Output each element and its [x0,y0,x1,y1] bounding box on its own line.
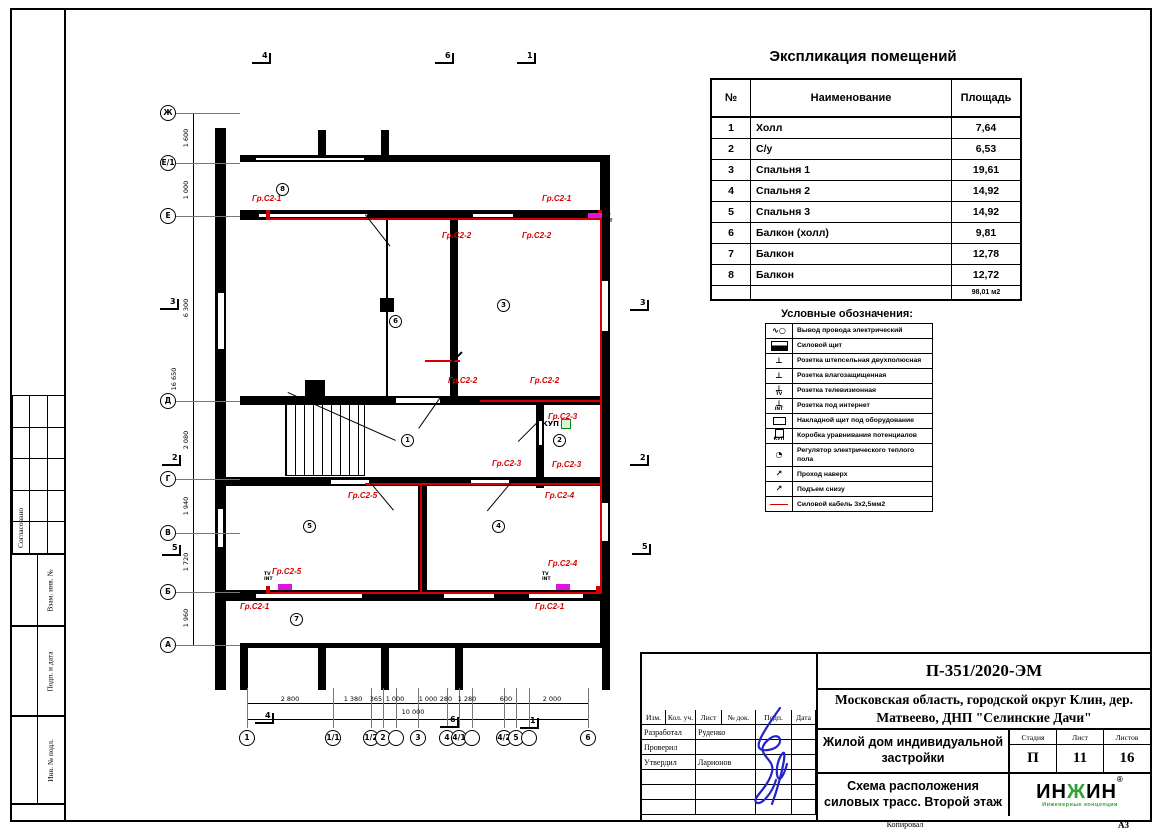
room-area: 9,81 [952,223,1022,244]
pass-up-icon: ↗ [766,467,793,481]
room-name: С/у [751,139,952,160]
legend-item: КУПКоробка уравнивания потенциалов [766,429,932,444]
room-name: Балкон (холл) [751,223,952,244]
col-name: Наименование [751,79,952,117]
floor-regulator-icon: ◔ [766,444,793,466]
left-grid-cell [13,459,30,491]
legend-rows: ∿○Вывод провода электрическийСиловой щит… [766,324,932,511]
revision-cell [666,654,696,668]
room-area: 12,72 [952,265,1022,286]
room-number: 6 [711,223,751,244]
room-number: 8 [711,265,751,286]
legend-item-label: Накладной щит под оборудование [793,414,932,427]
power-wiring-line [480,400,602,402]
dimension-label: 1 940 [182,497,190,516]
vzam-label: Взам. инв. № [46,569,55,611]
revision-grid [642,654,816,710]
left-grid-cell [13,428,30,460]
signature [742,706,798,812]
title-block-right: П-351/2020-ЭМ Московская область, городс… [818,654,1150,820]
revision-cell [792,682,816,696]
registered-mark-icon: ® [1117,775,1124,784]
circuit-group-label: Гр.С2-4 [545,492,574,500]
left-grid-cell [48,396,65,428]
wall [318,130,326,157]
room-number-bubble: 4 [492,520,505,533]
axis-bubble: Е/1 [160,155,176,171]
circuit-group-label: Гр.С2-4 [548,560,577,568]
room-number-bubble: 6 [389,315,402,328]
axis-leader-line [176,479,240,480]
window [217,508,224,548]
axis-bubble [521,730,537,746]
left-grid-cell [30,459,47,491]
power-wiring-line [268,592,602,594]
axis-leader-line [459,688,460,728]
dimension-label: 1 600 [182,129,190,148]
podp-empty-cell [10,627,38,715]
dimension-label: 365 [370,695,382,703]
table-row: 4Спальня 214,92 [711,181,1021,202]
circuit-group-label: Гр.С2-2 [448,377,477,385]
room-area: 14,92 [952,202,1022,223]
logo-text: ИНЖИН® [1036,782,1124,802]
col-izm: Изм. [642,710,666,724]
axis-bubble: Ж [160,105,176,121]
section-marker: 2 [630,454,648,466]
room-area: 6,53 [952,139,1022,160]
dimension-label: 280 [440,695,452,703]
legend-item: ◔Регулятор электрического теплого пола [766,444,932,467]
window [601,502,609,542]
door-swing [487,483,511,511]
kup-label: КУП [542,421,559,428]
wire-output-icon: ∿○ [766,324,793,338]
role-label: Проверил [642,740,696,755]
tv-int-socket-mark: TV INT [604,215,613,225]
revision-cell [696,654,722,668]
vzam-empty-cell [10,555,38,625]
revision-cell [666,696,696,710]
object-row: Жилой дом индивидуальной застройки Стади… [818,730,1150,774]
role-label: Утвердил [642,755,696,770]
window [395,397,441,404]
podp-data-box: Подп. и дата [10,625,64,715]
axis-leader-line [247,688,248,728]
section-marker: 5 [162,544,180,556]
explication-header-row: № Наименование Площадь [711,79,1021,117]
circuit-group-label: Гр.С2-1 [252,195,281,203]
left-grid-cell [48,459,65,491]
dimension-label: 1 000 [386,695,405,703]
wall [240,643,610,648]
power-wiring-line [268,218,602,220]
rise-below-icon: ↗ [766,482,793,496]
sheets-label: Листов [1104,730,1150,744]
legend-item: Силовой щит [766,339,932,354]
inv-podl-box: Инв. № подл. [10,715,64,805]
socket-internet-icon-suffix: INT [775,408,784,413]
circuit-group-label: Гр.С2-3 [548,413,577,421]
axis-leader-line [176,645,240,646]
role-label: Разработал [642,725,696,740]
dimension-label: 1 960 [182,609,190,628]
table-row: 8Балкон12,72 [711,265,1021,286]
explication-table: № Наименование Площадь 1Холл7,642С/у6,53… [710,78,1022,301]
room-number: 7 [711,244,751,265]
role-label [642,785,696,800]
revision-cell [666,668,696,682]
room-area: 19,61 [952,160,1022,181]
legend: ∿○Вывод провода электрическийСиловой щит… [765,323,933,512]
left-grid-cell [30,428,47,460]
legend-item-label: Вывод провода электрический [793,324,932,337]
circuit-group-label: Гр.С2-5 [272,568,301,576]
dimension-label: 600 [500,695,512,703]
section-marker: 4 [252,52,270,64]
wall [305,380,325,402]
wall [455,646,463,690]
axis-bubble: В [160,525,176,541]
section-marker: 6 [435,52,453,64]
title-block: Изм. Кол. уч. Лист № док. Подп. Дата Раз… [640,652,1152,822]
power-wiring-line [420,483,422,592]
axis-leader-line [176,533,240,534]
left-grid-cell [30,522,47,554]
sheet-title: Схема расположения силовых трасс. Второй… [818,774,1010,816]
table-row: 6Балкон (холл)9,81 [711,223,1021,244]
axis-leader-line [516,688,517,728]
room-area: 12,78 [952,244,1022,265]
col-number: № [711,79,751,117]
axis-leader-line [333,688,334,728]
legend-item: ⊥INTРозетка под интернет [766,399,932,414]
sheet-value: 11 [1057,745,1104,772]
kup-box-icon-suffix: КУП [774,438,785,443]
wall [380,298,394,312]
axis-bubble: Е [160,208,176,224]
axis-bubble: 1/1 [325,730,341,746]
socket-moisture-icon: ⊥ [766,369,793,383]
revision-cell [666,682,696,696]
axis-bubble [388,730,404,746]
surface-panel-icon [766,414,793,428]
section-marker: 1 [517,52,535,64]
drawing-sheet: Согласовано Взам. инв. № Подп. и дата Ин… [0,0,1166,832]
room-number-bubble: 5 [303,520,316,533]
power-panel-icon [766,339,793,353]
revision-cell [642,682,666,696]
legend-item: Накладной щит под оборудование [766,414,932,429]
stage-grid: Стадия Лист Листов П 11 16 [1010,730,1150,772]
axis-bubble: 3 [410,730,426,746]
room-name: Спальня 3 [751,202,952,223]
kup-box-icon: КУП [766,429,793,443]
axis-bubble: А [160,637,176,653]
revision-cell [642,668,666,682]
revision-cell [792,668,816,682]
tv-int-socket-icon [556,584,570,590]
axis-leader-line [371,688,372,728]
room-number: 1 [711,117,751,139]
col-list: Лист [696,710,722,724]
legend-item-label: Проход наверх [793,468,932,481]
room-name: Холл [751,117,952,139]
tv-int-socket-icon [278,584,292,590]
revision-cell [642,654,666,668]
axis-bubble: Г [160,471,176,487]
section-marker: 2 [162,454,180,466]
circuit-group-label: Гр.С2-3 [492,460,521,468]
project-address: Московская область, городской округ Клин… [818,690,1150,730]
int-label: INT [264,578,273,583]
circuit-group-label: Гр.С2-5 [348,492,377,500]
table-row: 7Балкон12,78 [711,244,1021,265]
floor-plan: КУП TV INT TV INT TV INT ЖЕ/1ЕДГВБА11/11… [140,40,665,800]
left-grid-cell [48,491,65,523]
legend-item: Силовой кабель 3х2,5мм2 [766,497,932,511]
circuit-group-label: Гр.С2-2 [530,377,559,385]
role-label [642,770,696,785]
axis-leader-line [176,216,240,217]
legend-item-label: Силовой щит [793,339,932,352]
room-number-bubble: 2 [553,434,566,447]
left-grid-cell [48,522,65,554]
tv-int-socket-mark: TV INT [542,573,551,583]
room-area: 14,92 [952,181,1022,202]
legend-item-label: Подъем снизу [793,483,932,496]
inv-empty-cell [10,717,38,803]
legend-item: ⊥TVРозетка телевизионная [766,384,932,399]
legend-item: ⊥Розетка штепсельная двухполюсная [766,354,932,369]
axis-leader-line [472,688,473,728]
room-name: Спальня 2 [751,181,952,202]
room-number: 3 [711,160,751,181]
axis-bubble: 1 [239,730,255,746]
window [217,292,225,350]
table-row: 3Спальня 119,61 [711,160,1021,181]
socket-internet-icon: ⊥INT [766,399,793,413]
window [330,479,370,485]
legend-item: ↗Проход наверх [766,467,932,482]
dimension-label: 10 000 [402,708,425,716]
socket-double-icon: ⊥ [766,354,793,368]
circuit-group-label: Гр.С2-1 [240,603,269,611]
section-marker: 4 [255,712,273,724]
legend-item-label: Регулятор электрического теплого пола [793,444,932,466]
legend-item: ⊥Розетка влагозащищенная [766,369,932,384]
legend-item-label: Силовой кабель 3х2,5мм2 [793,498,932,511]
revision-cell [722,668,756,682]
int-label: INT [604,220,613,225]
revision-cell [756,668,792,682]
legend-item-label: Розетка влагозащищенная [793,369,932,382]
section-marker: 5 [632,543,650,555]
axis-leader-line [504,688,505,728]
axis-leader-line [396,688,397,728]
dimension-label: 6 300 [182,299,190,318]
revision-cell [722,654,756,668]
room-number-bubble: 1 [401,434,414,447]
revision-cell [642,696,666,710]
tv-int-socket-icon [588,213,602,218]
power-wiring-line [266,210,270,220]
legend-title: Условные обозначения: [762,308,932,320]
room-number: 4 [711,181,751,202]
room-number: 5 [711,202,751,223]
dimension-label: 16 650 [170,368,178,391]
total-area: 98,01 м2 [952,286,1022,301]
left-grid-cell [30,396,47,428]
revision-cell [756,654,792,668]
section-marker: 6 [440,716,458,728]
table-row: 2С/у6,53 [711,139,1021,160]
wall [240,646,248,690]
circuit-group-label: Гр.С2-3 [552,461,581,469]
power-wiring-line [600,218,602,594]
revision-cell [696,696,722,710]
stage-value: П [1010,745,1057,772]
dimension-label: 2 800 [281,695,300,703]
doc-number: П-351/2020-ЭМ [818,654,1150,690]
table-row: 1Холл7,64 [711,117,1021,139]
room-name: Балкон [751,265,952,286]
role-label [642,800,696,815]
paper-format-label: А3 [1118,820,1129,830]
wall [215,128,226,690]
axis-leader-line [176,592,240,593]
circuit-group-label: Гр.С2-2 [442,232,471,240]
legend-item: ∿○Вывод провода электрический [766,324,932,339]
room-name: Спальня 1 [751,160,952,181]
axis-leader-line [176,113,240,114]
soglasovano-label: Согласовано [16,508,25,548]
left-dim-line [193,113,194,645]
table-row: 5Спальня 314,92 [711,202,1021,223]
left-grid-cell [30,491,47,523]
room-name: Балкон [751,244,952,265]
room-area: 7,64 [952,117,1022,139]
revision-cell [696,682,722,696]
dimension-label: 1 720 [182,553,190,572]
revision-cell [722,682,756,696]
dimension-label: 2 080 [182,431,190,450]
axis-bubble [464,730,480,746]
explication-title: Экспликация помещений [710,48,1016,65]
room-number: 2 [711,139,751,160]
revision-cell [756,682,792,696]
sheet-label: Лист [1057,730,1104,744]
dimension-label: 1 000 [419,695,438,703]
power-wiring-line [596,586,600,594]
revision-cell [792,654,816,668]
wall [381,646,389,690]
stairs [285,400,365,476]
legend-item: ↗Подъем снизу [766,482,932,497]
inv-podl-label: Инв. № подл. [46,739,55,782]
sheet-title-row: Схема расположения силовых трасс. Второй… [818,774,1150,816]
copied-label: Копировал [860,820,950,829]
power-cable-icon [766,497,793,511]
legend-item-label: Розетка штепсельная двухполюсная [793,354,932,367]
window [601,280,609,332]
col-area: Площадь [952,79,1022,117]
window [255,157,365,161]
circuit-group-label: Гр.С2-2 [522,232,551,240]
section-marker: 3 [630,299,648,311]
wall [381,130,389,157]
room-number-bubble: 7 [290,613,303,626]
axis-leader-line [588,688,589,728]
section-marker: 3 [160,298,178,310]
axis-leader-line [176,163,240,164]
stage-label: Стадия [1010,730,1057,744]
circuit-group-label: Гр.С2-1 [535,603,564,611]
revision-cell [696,668,722,682]
podp-data-label: Подп. и дата [46,651,55,691]
dimension-label: 1 380 [344,695,363,703]
object-name: Жилой дом индивидуальной застройки [818,730,1010,772]
axis-bubble: 6 [580,730,596,746]
explication-total-row: 98,01 м2 [711,286,1021,301]
explication-rows: 1Холл7,642С/у6,533Спальня 119,614Спальня… [711,117,1021,286]
dimension-label: 1 280 [458,695,477,703]
sheets-value: 16 [1104,745,1150,772]
dimension-label: 1 000 [182,181,190,200]
left-grid-cell [13,396,30,428]
vzam-box: Взам. инв. № [10,553,64,625]
room-number-bubble: 3 [497,299,510,312]
left-grid-cell [48,428,65,460]
socket-tv-icon-suffix: TV [776,393,783,398]
legend-item-label: Коробка уравнивания потенциалов [793,429,932,442]
power-wiring-line [365,483,602,485]
axis-bubble: Б [160,584,176,600]
legend-item-label: Розетка под интернет [793,399,932,412]
axis-leader-line [383,688,384,728]
wall [602,646,610,690]
col-kol-uch: Кол. уч. [666,710,696,724]
inzhin-logo: ИНЖИН® Инженерные концепции [1010,774,1150,816]
int-label: INT [542,578,551,583]
circuit-group-label: Гр.С2-1 [542,195,571,203]
axis-leader-line [176,401,240,402]
dimension-label: 2 000 [543,695,562,703]
wall [318,646,326,690]
axis-bubble: Д [160,393,176,409]
section-marker: 1 [520,717,538,729]
socket-tv-icon: ⊥TV [766,384,793,398]
legend-item-label: Розетка телевизионная [793,384,932,397]
power-wiring-line [266,586,270,594]
